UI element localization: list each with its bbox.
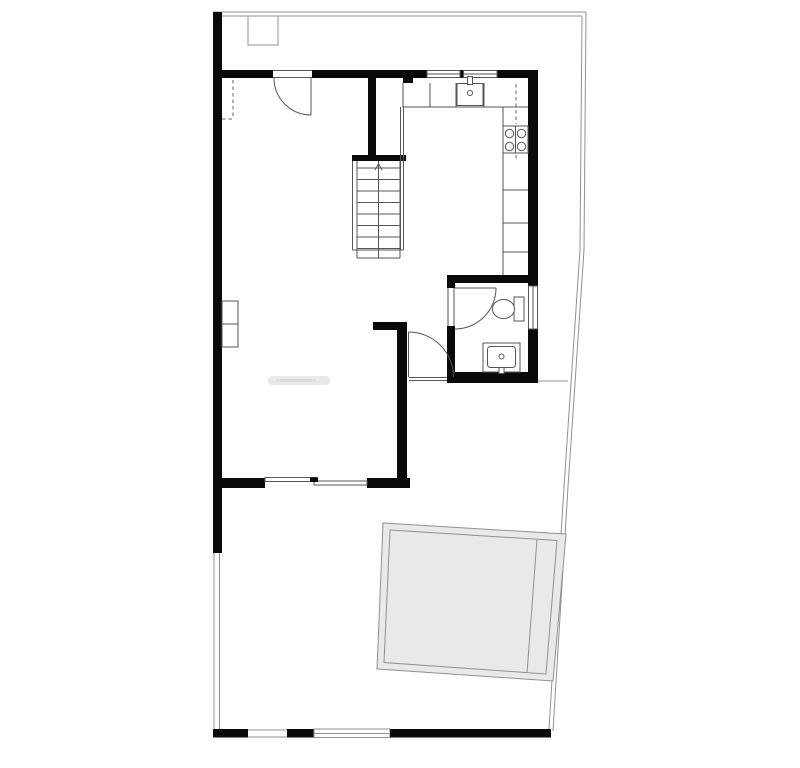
rear-fence-panel bbox=[314, 729, 390, 738]
interior-wall bbox=[397, 322, 407, 478]
bathroom bbox=[448, 286, 568, 381]
stair-head-wall bbox=[352, 155, 406, 161]
top-wall bbox=[213, 70, 273, 78]
floor-plan-page bbox=[0, 0, 800, 768]
toilet-bowl bbox=[493, 300, 515, 319]
terrace-pad bbox=[377, 523, 566, 681]
interior-wall bbox=[368, 74, 376, 157]
left-wall bbox=[213, 12, 222, 553]
door-swing-arc bbox=[409, 332, 454, 377]
bathroom-wall bbox=[447, 275, 538, 283]
kitchen-sink bbox=[457, 77, 483, 106]
hall-door bbox=[409, 332, 454, 381]
door-swing-arc bbox=[274, 78, 311, 115]
bathroom-window bbox=[529, 286, 538, 329]
fence-wall-segment bbox=[213, 729, 248, 738]
bathroom-wall bbox=[447, 283, 455, 288]
bathroom-wall bbox=[447, 326, 455, 372]
utility-meter-box bbox=[248, 16, 278, 45]
floor-plan-drawing bbox=[0, 0, 800, 768]
right-wall bbox=[528, 70, 538, 286]
toilet-tank bbox=[514, 297, 524, 321]
rear-boundary-wall bbox=[213, 729, 551, 738]
bottom-wall bbox=[213, 478, 265, 488]
faucet bbox=[468, 77, 473, 85]
sliding-patio-door bbox=[265, 478, 367, 486]
fence-wall-segment bbox=[287, 729, 314, 738]
stair-direction-arrow bbox=[375, 164, 382, 175]
bottom-wall bbox=[367, 478, 410, 488]
toilet bbox=[493, 297, 525, 321]
fence-wall-segment bbox=[390, 729, 551, 738]
faucet bbox=[499, 368, 504, 374]
house-walls bbox=[213, 12, 538, 553]
stair-railing bbox=[401, 107, 404, 250]
washbasin bbox=[483, 343, 520, 374]
radiator bbox=[222, 301, 238, 347]
staircase bbox=[353, 107, 404, 258]
window-mullion bbox=[460, 70, 464, 78]
cooktop-4-burners bbox=[503, 126, 528, 153]
wardrobe-dashed-outline bbox=[222, 80, 233, 119]
wall-pier bbox=[403, 77, 413, 83]
bathroom-wall bbox=[447, 372, 538, 383]
door-swing-arc bbox=[455, 288, 496, 329]
door-overlap-mark bbox=[310, 478, 318, 483]
entry-door bbox=[273, 71, 312, 116]
kitchen bbox=[403, 77, 528, 276]
faint-label-smudge bbox=[268, 376, 330, 385]
bathroom-door bbox=[455, 288, 496, 329]
